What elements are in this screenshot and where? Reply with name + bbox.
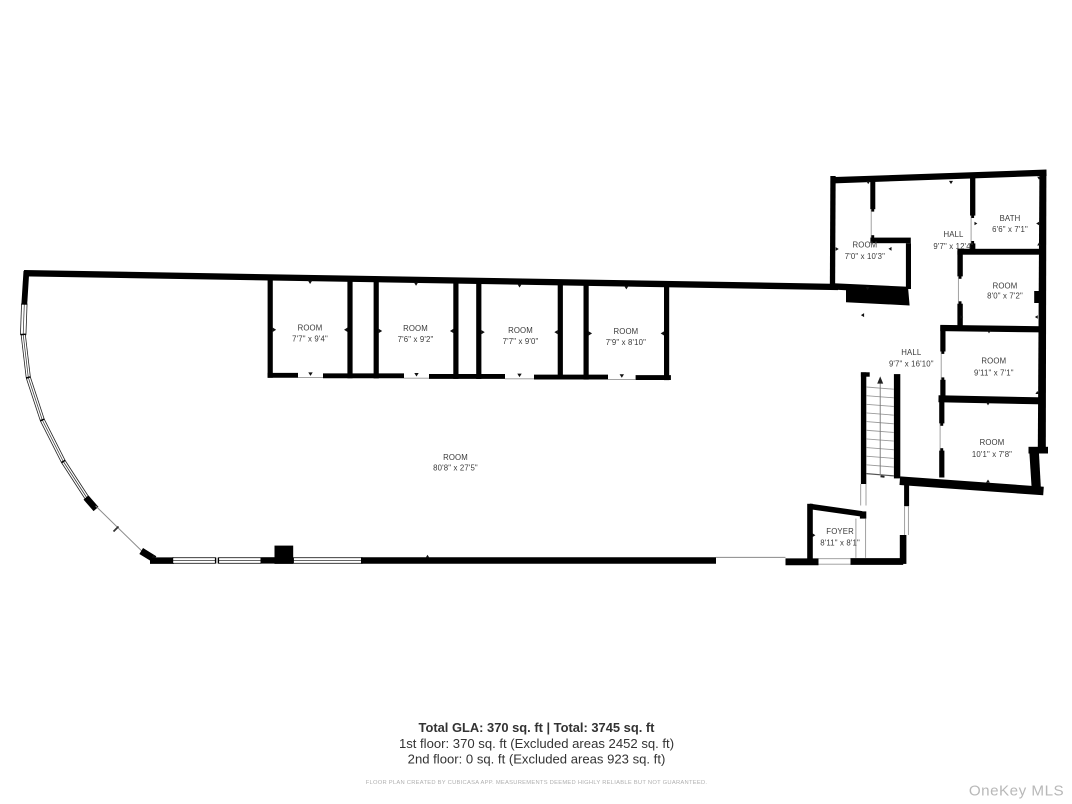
svg-text:10'1" x 7'8": 10'1" x 7'8" bbox=[972, 450, 1012, 459]
svg-text:ROOM: ROOM bbox=[980, 438, 1005, 447]
svg-text:80'8" x 27'5": 80'8" x 27'5" bbox=[433, 464, 478, 473]
svg-text:ROOM: ROOM bbox=[443, 453, 468, 462]
svg-text:ROOM: ROOM bbox=[852, 241, 877, 250]
svg-text:FLOOR PLAN CREATED BY CUBICASA: FLOOR PLAN CREATED BY CUBICASA APP. MEAS… bbox=[366, 780, 708, 786]
svg-text:Total GLA: 370 sq. ft | Total:: Total GLA: 370 sq. ft | Total: 3745 sq. … bbox=[419, 720, 656, 735]
svg-text:BATH: BATH bbox=[1000, 214, 1021, 223]
svg-text:9'7" x 16'10": 9'7" x 16'10" bbox=[889, 360, 934, 369]
svg-text:8'11" x 8'1": 8'11" x 8'1" bbox=[820, 539, 860, 548]
svg-text:FOYER: FOYER bbox=[826, 527, 854, 536]
svg-text:ROOM: ROOM bbox=[981, 357, 1006, 366]
svg-text:7'6" x 9'2": 7'6" x 9'2" bbox=[398, 335, 434, 344]
svg-text:ROOM: ROOM bbox=[403, 324, 428, 333]
svg-text:7'9" x 8'10": 7'9" x 8'10" bbox=[606, 338, 646, 347]
svg-text:1st floor: 370 sq. ft (Exclude: 1st floor: 370 sq. ft (Excluded areas 24… bbox=[399, 736, 674, 751]
svg-text:7'7" x 9'0": 7'7" x 9'0" bbox=[503, 337, 539, 346]
svg-text:ROOM: ROOM bbox=[993, 281, 1018, 290]
svg-text:8'0" x 7'2": 8'0" x 7'2" bbox=[987, 292, 1023, 301]
svg-text:7'7" x 9'4": 7'7" x 9'4" bbox=[292, 335, 328, 344]
svg-text:HALL: HALL bbox=[901, 348, 922, 357]
svg-text:7'0" x 10'3": 7'0" x 10'3" bbox=[845, 252, 885, 261]
svg-text:6'6" x 7'1": 6'6" x 7'1" bbox=[992, 225, 1028, 234]
svg-text:HALL: HALL bbox=[943, 230, 964, 239]
svg-text:ROOM: ROOM bbox=[613, 327, 638, 336]
svg-text:OneKey MLS: OneKey MLS bbox=[969, 783, 1064, 800]
svg-text:ROOM: ROOM bbox=[508, 326, 533, 335]
svg-text:9'7" x 12'4": 9'7" x 12'4" bbox=[933, 242, 973, 251]
svg-text:ROOM: ROOM bbox=[298, 324, 323, 333]
svg-text:2nd floor: 0 sq. ft (Excluded: 2nd floor: 0 sq. ft (Excluded areas 923 … bbox=[408, 751, 666, 766]
svg-text:9'11" x 7'1": 9'11" x 7'1" bbox=[974, 368, 1014, 377]
